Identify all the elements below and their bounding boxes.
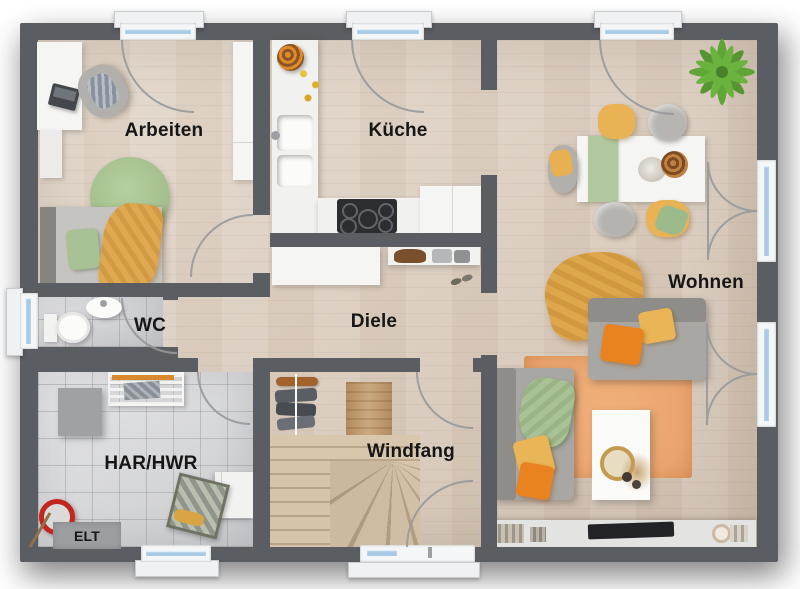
wc-faucet	[100, 300, 107, 307]
kitchen-faucet	[271, 131, 280, 140]
wall-wc-har	[38, 347, 178, 372]
orange-pillow	[600, 323, 645, 365]
room-label-har-hwr: HAR/HWR	[104, 453, 197, 475]
burner	[378, 203, 394, 219]
cooktop	[337, 199, 397, 233]
books	[530, 527, 546, 542]
french-door-glass	[764, 166, 769, 256]
dining-chair-gray	[594, 202, 635, 237]
burner	[358, 209, 378, 229]
yellow-flowers	[296, 65, 326, 109]
room-label-windfang: Windfang	[367, 441, 455, 463]
table-runner	[588, 136, 618, 202]
storage-box	[58, 388, 102, 436]
room-label-diele: Diele	[351, 311, 397, 333]
wall-stub	[253, 273, 270, 283]
room-label-arbeiten: Arbeiten	[125, 120, 204, 142]
mustard-blanket	[97, 200, 165, 292]
toilet-bowl	[56, 312, 90, 343]
vase	[632, 480, 641, 489]
green-pillow	[65, 227, 101, 270]
room-label-wohnen: Wohnen	[668, 272, 744, 294]
wc-sink	[86, 297, 122, 318]
burner	[378, 218, 393, 233]
sofa-vertical	[492, 368, 574, 500]
sideboard	[272, 247, 380, 285]
decor-item	[712, 524, 731, 543]
orange-garment	[112, 375, 174, 380]
window-glass	[605, 29, 669, 34]
elt-cabinet: ELT	[53, 522, 121, 549]
brown-bag	[394, 249, 426, 263]
building-outline: ELT	[20, 23, 778, 562]
dining-chair-yellow	[598, 104, 635, 139]
wall-arbeiten-kueche	[253, 40, 270, 215]
wall-har-windfang	[253, 358, 270, 547]
coat-rack	[274, 374, 320, 442]
dining-chair-gray	[648, 104, 687, 141]
kitchen-sink-upper	[277, 115, 313, 151]
wall-windfang-wohnen	[481, 355, 497, 547]
chair-plaid-cushion	[84, 70, 123, 112]
cabinet-divider	[452, 186, 453, 233]
mustard-cloth	[173, 508, 205, 528]
door-handle	[428, 547, 432, 558]
orange-pillow	[515, 461, 554, 500]
table-bowl	[661, 151, 688, 178]
rack-rail	[295, 374, 297, 442]
room-label-wc: WC	[134, 315, 166, 337]
hall-shelf	[388, 247, 480, 265]
window-glass	[357, 29, 419, 34]
coffee-table	[592, 410, 650, 500]
wall-arbeiten-wc	[38, 283, 270, 297]
daybed-headboard	[40, 207, 56, 283]
dining-chair-yellow	[646, 200, 689, 237]
wardrobe-divider	[233, 142, 253, 143]
sofa-horizontal	[588, 298, 706, 380]
laptop-screen	[53, 87, 77, 102]
dining-chair-gray	[548, 145, 578, 193]
daybed	[40, 207, 162, 283]
entrance-door-sidelight	[367, 550, 397, 556]
room-label-kueche: Küche	[368, 120, 427, 142]
vase	[622, 472, 632, 482]
kitchen-sink-lower	[277, 155, 313, 187]
wall-kueche-wohnen	[481, 175, 497, 293]
window-sill	[135, 560, 219, 577]
floorplan-canvas: ELT	[0, 0, 800, 589]
entrance-step	[348, 562, 480, 578]
window-glass	[146, 551, 206, 556]
yellow-pillow	[637, 307, 676, 344]
window-glass	[26, 298, 31, 344]
drying-rack	[108, 372, 184, 406]
chair-throw-yellow	[548, 148, 574, 177]
wardrobe	[233, 42, 253, 180]
window-glass	[125, 29, 191, 34]
tv-lowboard	[486, 520, 756, 547]
decor-item	[730, 525, 748, 542]
burner	[342, 203, 358, 219]
wall-kueche-wohnen-stub	[481, 40, 497, 90]
wall-diele-windfang	[253, 358, 420, 372]
wall-diele-har	[178, 358, 198, 372]
wall-kueche-diele	[270, 233, 497, 247]
books	[494, 524, 524, 543]
stair-treads-winder	[330, 461, 420, 547]
wall-wc-stub	[163, 283, 178, 300]
television	[588, 522, 674, 540]
shelf-item	[454, 250, 470, 263]
shelf-item	[432, 249, 452, 263]
desk-shelf	[40, 130, 62, 178]
wooden-hanger	[276, 377, 318, 386]
french-door-glass	[764, 328, 769, 421]
room-label-elt: ELT	[74, 528, 100, 544]
dining-table	[577, 136, 705, 202]
kitchen-tall-cabinet	[420, 186, 481, 233]
plaid-shirt	[123, 381, 160, 400]
